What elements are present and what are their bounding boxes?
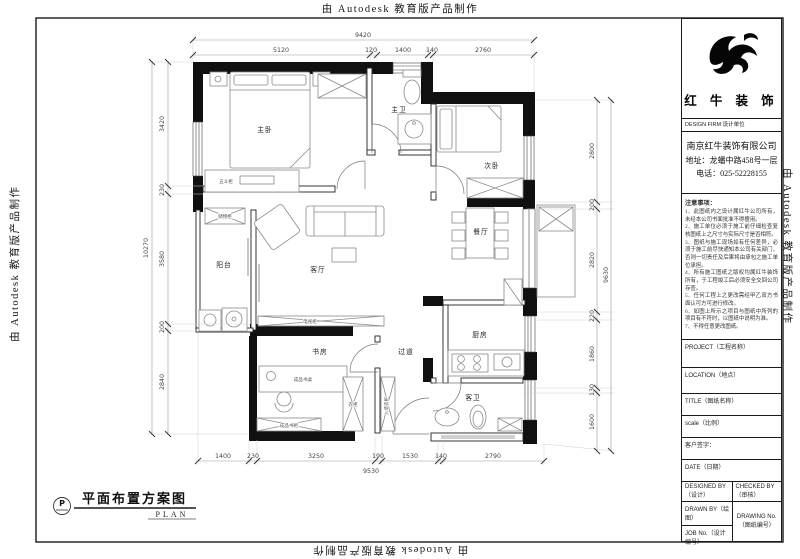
dim-right-6: 1600 <box>589 414 596 430</box>
room-label-master-bath: 主卫 <box>391 105 407 114</box>
dim-bottom-6: 2790 <box>485 453 501 460</box>
sofa-symbol <box>253 203 384 262</box>
company-info: 南京红牛装饰有限公司 地址：龙蟠中路458号一层 电话：025-52228155 <box>682 132 781 194</box>
field-drawing-no: DRAWING No.（图纸编号） <box>732 501 782 541</box>
company-address: 地址：龙蟠中路458号一层 <box>682 155 781 166</box>
field-client-signature: 客户签字： <box>682 437 781 459</box>
toilet-symbol <box>470 405 486 429</box>
dim-right-total: 9630 <box>603 267 610 283</box>
dim-top-3: 140 <box>426 47 438 54</box>
room-label-guest-bath: 客卫 <box>465 393 481 402</box>
laundry-sink-symbol <box>199 310 221 331</box>
dim-left-2: 3580 <box>159 251 166 267</box>
plan-symbol: P <box>59 499 65 508</box>
company-name: 南京红牛装饰有限公司 <box>682 139 781 152</box>
room-label-dining: 餐厅 <box>473 227 489 236</box>
company-phone: 电话：025-52228155 <box>682 168 781 179</box>
brand-name: 红 牛 装 饰 <box>682 90 781 109</box>
label-bookcase: 成品书柜 <box>280 422 299 429</box>
label-dresser: 五斗柜 <box>219 178 233 185</box>
logo-box: 红 牛 装 饰 <box>682 19 781 119</box>
double-bed-symbol <box>230 72 310 168</box>
dim-top-2: 1400 <box>395 47 411 54</box>
tv-cabinet-symbol <box>258 316 384 326</box>
field-date: DATE（日期） <box>682 459 781 481</box>
design-firm-row: DESIGN FIRM 设计单位 <box>682 119 781 132</box>
single-bed-symbol <box>437 106 501 152</box>
dim-right-5: 130 <box>589 384 596 396</box>
room-label-kitchen: 厨房 <box>472 330 488 339</box>
sink-symbol <box>398 114 431 144</box>
dim-top-1: 120 <box>365 47 377 54</box>
dim-bottom-2: 3250 <box>308 453 324 460</box>
field-scale: scale（比例） <box>682 415 781 437</box>
dim-right-1: 200 <box>589 199 596 211</box>
drawing-sheet: 由 Autodesk 教育版产品制作 由 Autodesk 教育版产品制作 由 … <box>0 0 800 559</box>
field-title: TITLE（图纸名称） <box>682 393 781 415</box>
dim-right-3: 220 <box>589 310 596 322</box>
room-label-balcony: 阳台 <box>216 260 232 269</box>
dim-top-4: 2760 <box>475 47 491 54</box>
plan-subtitle: PLAN <box>156 510 189 519</box>
note-line: 4、所有施工图纸之版权均属红牛装饰所有，于工程竣工后必须安全交回公司存查。 <box>685 270 778 293</box>
field-job-no: JOB No.（设计编号） <box>682 525 732 541</box>
kitchen-counter-symbol <box>448 350 524 376</box>
dim-bottom-4: 1530 <box>402 453 418 460</box>
field-drawn-by: DRAWN BY（绘图） <box>682 501 732 525</box>
label-wardrobe: 衣柜 <box>348 401 358 408</box>
room-label-living: 客厅 <box>310 265 326 274</box>
dim-right-0: 2800 <box>589 143 596 159</box>
floor-plan-drawing: 5120 120 1400 140 2760 9420 1400 230 325… <box>0 0 800 559</box>
washing-machine-symbol <box>222 308 247 331</box>
dim-left-1: 230 <box>159 184 166 196</box>
note-line: 5、任何工程上之更改需经甲乙双方书面认可方可进行修改。 <box>685 293 778 308</box>
plan-title-group: P 平面布置方案图 PLAN <box>54 491 197 519</box>
label-storage-cabinet: 储物柜 <box>218 213 232 220</box>
nightstand-symbol <box>210 72 227 86</box>
bull-logo-icon <box>700 27 764 83</box>
dim-bottom-1: 230 <box>247 453 259 460</box>
note-line: 2、施工单位必须于施工前仔细检查复核图纸上之尺寸与实际尺寸是否相符。 <box>685 224 778 239</box>
dim-bottom-3: 190 <box>372 453 384 460</box>
dim-left-4: 2840 <box>159 374 166 390</box>
title-block: 红 牛 装 饰 DESIGN FIRM 设计单位 南京红牛装饰有限公司 地址：龙… <box>681 18 782 542</box>
room-label-master-bedroom: 主卧 <box>257 125 273 134</box>
dim-top-total: 9420 <box>355 32 371 39</box>
desk-symbol <box>259 366 347 412</box>
plan-title: 平面布置方案图 <box>82 491 187 506</box>
wardrobe-symbol <box>467 178 523 198</box>
room-label-hallway: 过道 <box>398 347 414 356</box>
notes-title: 注意事项： <box>685 198 778 207</box>
dim-left-total: 10270 <box>143 238 150 258</box>
label-tv-cabinet: 电视柜 <box>303 318 317 325</box>
dim-left-0: 3420 <box>159 116 166 132</box>
room-label-study: 书房 <box>312 347 328 356</box>
room-label-bedroom2: 次卧 <box>484 161 500 170</box>
wardrobe-symbol <box>318 74 366 98</box>
field-project: PROJECT（工程名称） <box>682 339 781 367</box>
bath-cabinet-symbol <box>498 418 522 431</box>
note-line: 3、图纸与施工现场如有任何差异，必须于施工前尽快通知本公司有关部门，否则一切责任… <box>685 240 778 271</box>
dim-left-3: 200 <box>159 321 166 333</box>
field-checked-by: CHECKED BY（审核） <box>732 481 782 501</box>
field-location: LOCATION（地点） <box>682 367 781 393</box>
fridge-symbol <box>504 279 522 305</box>
dim-top-0: 5120 <box>273 47 289 54</box>
sink-symbol <box>435 408 459 426</box>
dim-right-4: 1860 <box>589 346 596 362</box>
label-desk: 成品书桌 <box>294 376 313 383</box>
notes-block: 注意事项： 1、此图纸内之设计属红牛公司所有，未经本公司书面批准不得擅用。 2、… <box>682 194 781 339</box>
note-line: 7、不得任意更改图纸。 <box>685 324 778 332</box>
note-line: 1、此图纸内之设计属红牛公司所有，未经本公司书面批准不得擅用。 <box>685 209 778 224</box>
note-line: 6、如图上所示之项目与图纸中所列的项目有不符时，以图纸中说明为准。 <box>685 309 778 324</box>
toilet-symbol <box>403 70 421 104</box>
dim-bottom-total: 9530 <box>363 468 379 475</box>
dim-right-2: 2820 <box>589 252 596 268</box>
label-built-in-wardrobe: 入墙衣柜 <box>383 396 390 415</box>
dim-bottom-5: 140 <box>435 453 447 460</box>
field-designed-by: DESIGNED BY（设计） <box>682 481 732 501</box>
dim-bottom-0: 1400 <box>215 453 231 460</box>
